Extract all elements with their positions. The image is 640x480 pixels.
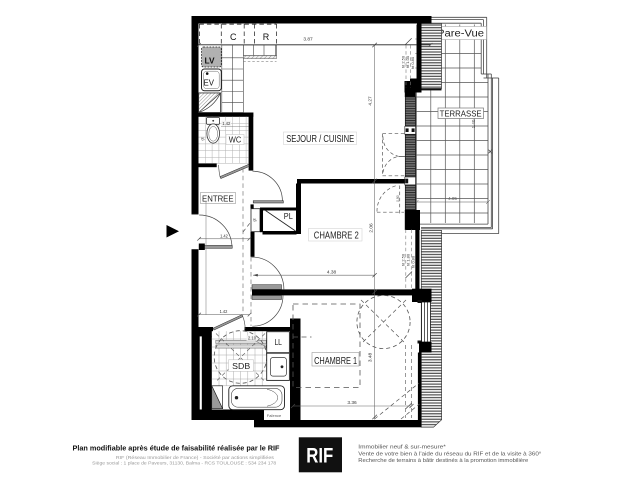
svg-text:LL: LL xyxy=(274,338,282,347)
svg-text:WC: WC xyxy=(229,134,242,144)
svg-text:PL: PL xyxy=(284,212,294,221)
svg-text:2.10: 2.10 xyxy=(248,336,257,341)
svg-text:4.27: 4.27 xyxy=(368,96,374,106)
svg-text:1.40: 1.40 xyxy=(471,119,476,128)
svg-text:1.42: 1.42 xyxy=(222,121,230,126)
svg-text:SDB: SDB xyxy=(232,361,250,371)
svg-text:LV: LV xyxy=(205,56,215,66)
svg-text:Vente de votre bien à l'aide d: Vente de votre bien à l'aide du réseau d… xyxy=(358,452,541,458)
svg-text:1.42: 1.42 xyxy=(220,233,228,239)
svg-text:gt: gt xyxy=(201,138,205,141)
svg-text:CHAMBRE 1: CHAMBRE 1 xyxy=(314,356,357,367)
svg-text:C: C xyxy=(230,32,237,42)
svg-text:Immobilier neuf & sur-mesure*: Immobilier neuf & sur-mesure* xyxy=(358,445,446,451)
svg-text:Faïence: Faïence xyxy=(267,413,282,418)
svg-text:CHAMBRE 2: CHAMBRE 2 xyxy=(314,231,359,242)
svg-text:ht 0.80: ht 0.80 xyxy=(410,56,415,69)
svg-text:4.38: 4.38 xyxy=(327,269,337,275)
svg-text:R: R xyxy=(263,32,270,42)
svg-text:3.87: 3.87 xyxy=(303,37,313,43)
svg-text:4.05: 4.05 xyxy=(448,196,457,201)
svg-text:3.36: 3.36 xyxy=(347,400,357,406)
svg-text:EV: EV xyxy=(204,78,215,88)
svg-text:RIF (Réseau Immobilier de Fran: RIF (Réseau Immobilier de France) - Soci… xyxy=(116,455,275,461)
svg-text:SEJOUR / CUISINE: SEJOUR / CUISINE xyxy=(286,134,354,145)
svg-text:Recherche de terrains à bâtir: Recherche de terrains à bâtir destinés à… xyxy=(358,458,528,464)
svg-text:1.42: 1.42 xyxy=(220,309,228,315)
svg-text:0.90: 0.90 xyxy=(396,195,400,202)
svg-text:ENTREE: ENTREE xyxy=(202,193,234,203)
svg-text:Siège social : 1 place de Pave: Siège social : 1 place de Paveurs, 31130… xyxy=(92,461,276,467)
svg-text:Plan modifiable après étude de: Plan modifiable après étude de faisabili… xyxy=(73,444,280,453)
svg-text:Pare-Vue: Pare-Vue xyxy=(437,29,484,40)
svg-text:RIF: RIF xyxy=(306,445,333,468)
svg-text:3.48: 3.48 xyxy=(368,353,374,363)
svg-text:ht 0.80: ht 0.80 xyxy=(410,255,415,268)
svg-text:2.06: 2.06 xyxy=(368,223,374,233)
svg-text:TERRASSE: TERRASSE xyxy=(440,108,482,118)
